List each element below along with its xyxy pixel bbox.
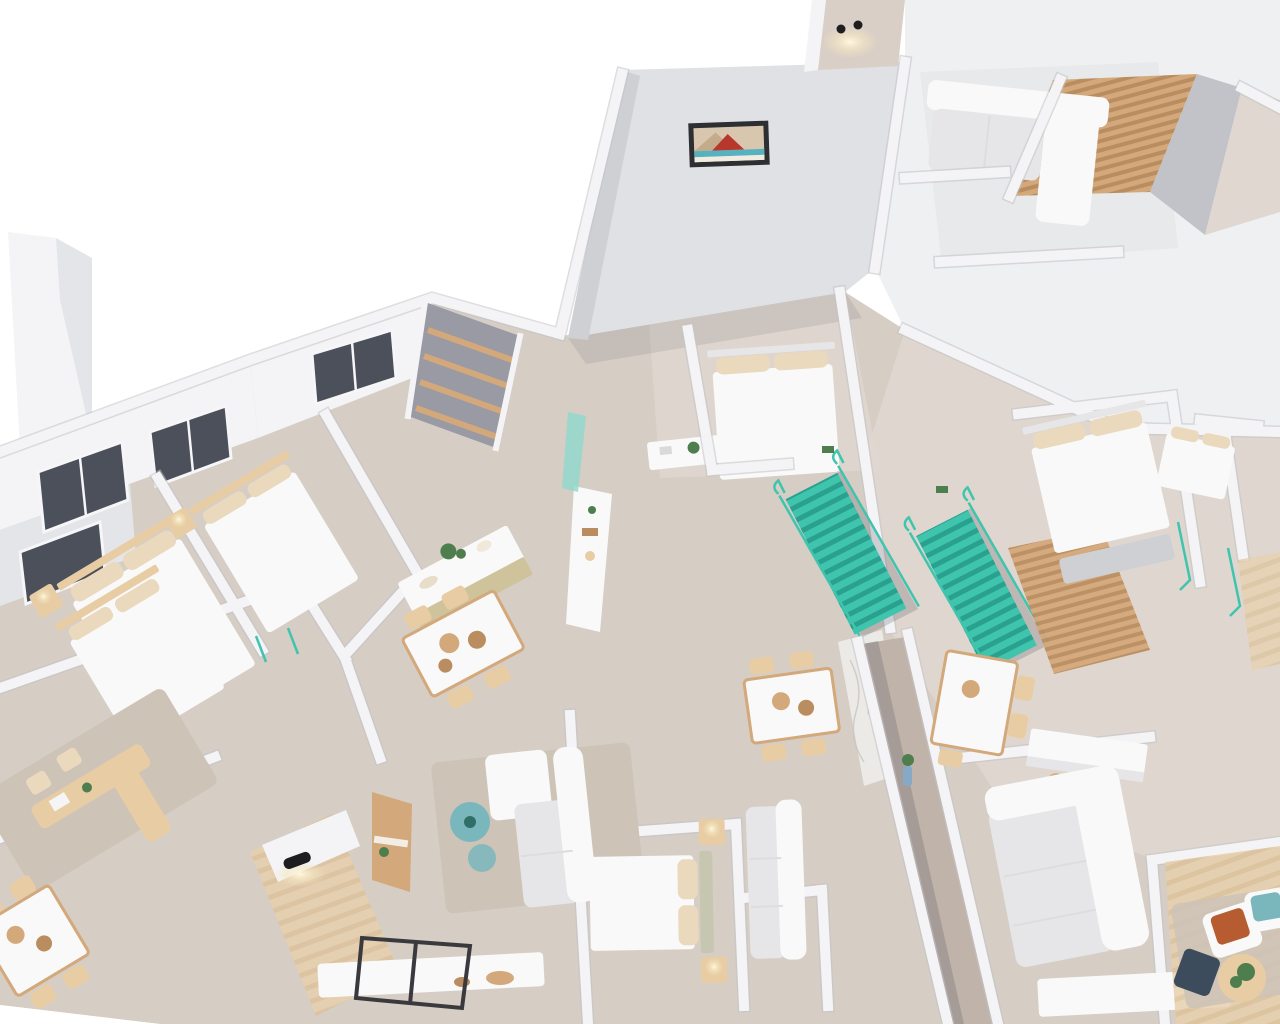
dining-chair bbox=[749, 656, 775, 675]
terrace bbox=[1165, 846, 1280, 1024]
coffee-table-teal-small bbox=[468, 844, 496, 872]
shelf-plant bbox=[588, 506, 596, 514]
terrace-plant bbox=[1230, 976, 1242, 988]
media-plant bbox=[379, 847, 389, 857]
sofa-cushion-split bbox=[751, 906, 783, 907]
dining-chair bbox=[761, 743, 787, 762]
shelf-item bbox=[585, 551, 595, 561]
bed-pillow bbox=[678, 905, 699, 945]
wall-sconce-icon bbox=[854, 21, 863, 30]
exit-sign bbox=[936, 486, 948, 493]
exit-sign bbox=[822, 446, 834, 453]
wall-art bbox=[688, 121, 769, 168]
shelf-item bbox=[582, 528, 598, 536]
kitchenette-sink bbox=[659, 446, 672, 455]
bed-headboard bbox=[699, 851, 714, 953]
bed-pillow bbox=[677, 859, 698, 899]
sconce-glow bbox=[822, 26, 878, 58]
pastry bbox=[486, 971, 514, 985]
corridor-plant bbox=[902, 754, 914, 766]
blue-vase bbox=[903, 766, 912, 786]
teal-cushion bbox=[1250, 891, 1280, 922]
wall-sconce-icon bbox=[837, 25, 846, 34]
sofa-cushion-split bbox=[749, 858, 781, 859]
dining-chair bbox=[788, 650, 814, 669]
sofa-bottom-middle bbox=[745, 799, 807, 961]
dining-chair bbox=[801, 737, 827, 756]
floorplan-render bbox=[0, 0, 1280, 1024]
render-canvas bbox=[0, 0, 1280, 1024]
coffee-table-center bbox=[464, 816, 476, 828]
